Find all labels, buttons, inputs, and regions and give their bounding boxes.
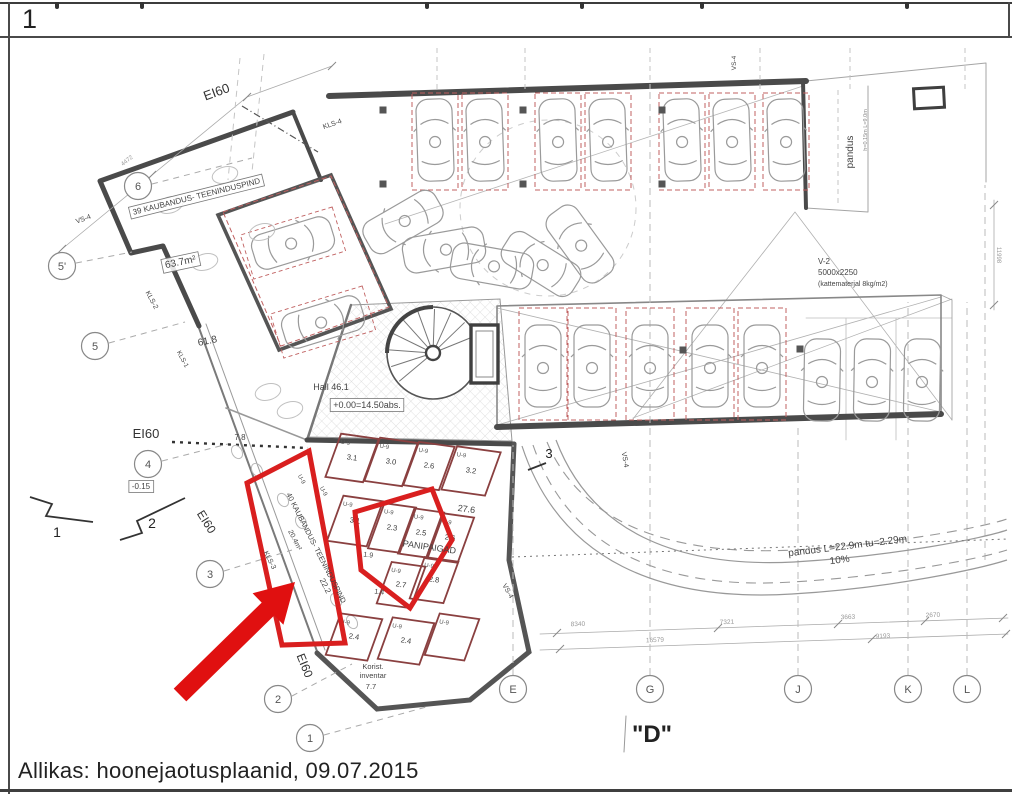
grid-marker-bottom-label: L <box>964 684 970 696</box>
plan-label-text: EI60 <box>201 80 231 103</box>
grid-marker-left-label: 4 <box>145 459 151 471</box>
grid-marker-bottom-label: E <box>509 684 516 696</box>
turning-circle-guide <box>460 120 636 296</box>
plan-label-text: EI60 <box>294 651 316 679</box>
plan-label: V-2 <box>818 257 831 266</box>
plan-label: inventar <box>360 671 387 680</box>
plan-label-text: U-9 <box>296 474 306 486</box>
wall-line <box>385 86 803 224</box>
plan-label-text: 8340 <box>571 621 586 629</box>
storage-room-number: 3.2 <box>465 465 477 475</box>
source-caption: Allikas: hoonejaotusplaanid, 09.07.2015 <box>18 758 419 784</box>
storage-door-label: U-9 <box>342 502 353 509</box>
plan-label: 16579 <box>646 637 665 645</box>
storage-door-label: U-9 <box>392 623 403 630</box>
ramp-curve <box>522 446 1007 595</box>
plan-label: EI60 <box>133 426 160 441</box>
dim-tick <box>243 93 251 101</box>
plan-label-text: 20.4m² <box>286 529 302 552</box>
storage-door-label: U-9 <box>439 619 450 626</box>
wall-line <box>100 112 293 326</box>
plan-label-text: 1.4 <box>374 588 385 596</box>
plan-label-text: 10% <box>829 554 850 567</box>
grid-marker-left-label: 5' <box>58 261 66 273</box>
column-dot <box>520 181 527 188</box>
wall-line <box>62 66 332 249</box>
plan-label-text: 7.7 <box>366 682 376 691</box>
plan-label: Hall 46.1 <box>313 382 349 392</box>
plan-label: 7.8 <box>234 433 246 442</box>
cropped-text-remnant <box>55 2 59 9</box>
plan-label-text: 2 <box>148 515 156 531</box>
car-icon <box>522 325 564 407</box>
plan-label: VS-4 <box>75 214 92 226</box>
car-icon <box>710 98 755 181</box>
plan-label-text: pandus <box>845 136 856 169</box>
plan-label: EI60 <box>294 651 316 679</box>
shaft-box <box>913 87 944 109</box>
plan-label: 20.4m² <box>286 529 302 552</box>
grid-leader-line <box>109 322 185 343</box>
car-icon <box>586 98 631 181</box>
grid-leader-line <box>76 252 132 263</box>
plan-label-text: EI60 <box>194 508 219 537</box>
plan-label: 7.7 <box>366 682 376 691</box>
storage-room-number: 2.4 <box>400 635 412 645</box>
turning-car-sweep-icon <box>357 183 449 260</box>
storage-door-label: U-9 <box>391 568 402 575</box>
column-dot <box>680 347 687 354</box>
column-dot <box>659 181 666 188</box>
column-dot <box>380 181 387 188</box>
wall-line <box>941 295 952 420</box>
column-dot <box>520 107 527 114</box>
plan-label-text: +0.00=14.50abs. <box>333 400 401 410</box>
storage-room-number: 2.7 <box>395 579 407 589</box>
plan-label: Korist. <box>362 662 383 671</box>
plan-label-text: 4472 <box>120 154 135 167</box>
plan-label: VS-4 <box>620 451 630 468</box>
scanned-plan-page: 1 3.1U-93.0U-92.6U-93.2U-93.1U-92.3U-92.… <box>0 0 1012 800</box>
cropped-text-remnant <box>425 2 429 9</box>
plan-label-text: 7321 <box>720 619 735 627</box>
plan-label: VS-4 <box>731 55 738 70</box>
grid-leader-line <box>224 550 292 571</box>
cropped-text-remnant <box>140 2 144 9</box>
plan-label-text: "D" <box>632 721 672 748</box>
plan-label-text: VS-4 <box>731 55 738 70</box>
plan-label-text: h=0.15m L=9.0m <box>863 109 869 151</box>
plan-label-text: -0.15 <box>132 482 151 491</box>
plan-label-text: KLS-2 <box>144 290 159 311</box>
dashed-construction-line <box>228 54 264 180</box>
storage-room-number: 3.0 <box>385 456 397 466</box>
furniture-shape <box>275 399 304 421</box>
ramp-station-line <box>512 539 1008 557</box>
plan-label-text: V-2 <box>818 257 831 266</box>
storage-room-number: 2.5 <box>415 527 427 537</box>
turning-car-sweep-icon <box>448 238 536 294</box>
garage-car-icon <box>248 211 339 275</box>
bottom-border-line <box>0 789 1012 792</box>
plan-label: (kattematerjal 8kg/m2) <box>818 281 888 288</box>
plan-label: EI60 <box>194 508 219 537</box>
storage-door-label: U-9 <box>456 452 467 459</box>
car-icon <box>764 98 809 181</box>
grid-marker-left-label: 6 <box>135 181 141 193</box>
plan-label: 3663 <box>841 614 856 622</box>
plan-label: 2 <box>148 515 156 531</box>
car-icon <box>536 98 581 181</box>
storage-room-number: 3.1 <box>346 452 358 462</box>
section-mark <box>30 497 93 522</box>
plan-label: 1.4 <box>374 588 385 596</box>
ramp-dashed-line <box>547 442 1007 551</box>
floor-plan-drawing: 3.1U-93.0U-92.6U-93.2U-93.1U-92.3U-92.5U… <box>10 38 1012 760</box>
plan-label: 9193 <box>876 633 891 641</box>
plan-label-text: VS-4 <box>620 451 630 468</box>
column-dot <box>797 346 804 353</box>
turning-car-sweep-icon <box>539 198 621 289</box>
wall-line <box>497 297 941 425</box>
plan-label-text: 1.9 <box>363 551 374 559</box>
plan-label-text: Korist. <box>362 662 383 671</box>
plan-label-text: 3663 <box>841 614 856 622</box>
plan-label-text: EI60 <box>133 426 160 441</box>
dashed-construction-line <box>513 92 985 675</box>
plan-label-text: 1 <box>53 524 61 540</box>
plan-label: KLS-4 <box>322 118 343 131</box>
plan-label: h=0.15m L=9.0m <box>863 109 869 151</box>
grid-marker-bottom-label: G <box>646 684 655 696</box>
plan-label-text: 7.8 <box>234 433 246 442</box>
storage-room-number: 2.3 <box>386 522 398 532</box>
car-icon <box>850 339 893 422</box>
wall-line <box>329 81 806 96</box>
parking-stall <box>240 207 345 279</box>
plan-label-text: 5000x2250 <box>818 268 858 277</box>
storage-room <box>425 614 480 661</box>
grid-marker-left-label: 2 <box>275 694 281 706</box>
sheet-number: 1 <box>22 4 37 35</box>
car-icon <box>800 339 843 422</box>
plan-label: "D" <box>632 721 672 748</box>
turning-car-sweep-icon <box>400 222 488 278</box>
plan-label: KLS-1 <box>175 350 190 370</box>
plan-label: 1.9 <box>363 551 374 559</box>
red-arrow <box>174 582 295 701</box>
plan-label-text: 16579 <box>646 637 665 645</box>
cropped-text-remnant <box>905 2 909 9</box>
dim-tick <box>328 62 336 70</box>
grid-marker-bottom-label: K <box>904 684 912 696</box>
right-border-line <box>1008 2 1010 38</box>
wall-line <box>624 716 626 752</box>
grid-marker-bottom-label: J <box>795 684 801 696</box>
car-icon <box>660 98 705 181</box>
plan-label-text: 11998 <box>995 247 1001 264</box>
storage-door-label: U-9 <box>379 444 390 451</box>
storage-door-label: U-9 <box>418 448 429 455</box>
plan-label: 61.8 <box>197 334 219 349</box>
plan-label: 8340 <box>571 621 586 629</box>
dashed-construction-line <box>242 106 318 152</box>
plan-label-text: 9193 <box>876 633 891 641</box>
plan-label: 2670 <box>926 612 941 620</box>
column-dot <box>380 107 387 114</box>
plan-label-text: 3 <box>545 446 552 461</box>
plan-label-text: KLS-4 <box>322 118 343 131</box>
car-icon <box>413 98 458 181</box>
wall-line <box>317 444 529 709</box>
plan-label: 4472 <box>120 154 135 167</box>
plan-label: 5000x2250 <box>818 268 858 277</box>
wall-line <box>806 318 952 440</box>
storage-room-number: 2.6 <box>423 460 435 470</box>
plan-label-text: inventar <box>360 671 387 680</box>
plan-label: +0.00=14.50abs. <box>330 399 404 412</box>
grid-leader-line <box>162 444 228 461</box>
wall-line <box>540 618 1008 650</box>
storage-door-label: U-9 <box>383 509 394 516</box>
plan-label-text: 27.6 <box>457 503 476 515</box>
turning-car-sweep-icon <box>495 224 587 303</box>
plan-label-text: KLS-1 <box>175 350 190 370</box>
cropped-text-remnant <box>580 2 584 9</box>
storage-room-number: 2.4 <box>348 631 360 641</box>
plan-label: 7321 <box>720 619 735 627</box>
storage-door-label: U-9 <box>340 440 351 447</box>
plan-label: -0.15 <box>129 481 154 493</box>
wall-line <box>806 63 986 212</box>
plan-label: 10% <box>829 554 850 567</box>
plan-label: U-9 <box>296 474 306 486</box>
spiral-staircase-icon <box>387 307 479 399</box>
car-icon <box>741 325 783 407</box>
wall-line <box>199 328 318 654</box>
furniture-shape <box>253 381 282 403</box>
elevator-shaft <box>471 325 498 383</box>
storage-door-label: U-9 <box>413 514 424 521</box>
plan-label: 11998 <box>995 247 1001 264</box>
plan-label: EI60 <box>201 80 231 103</box>
grid-marker-left-label: 5 <box>92 341 98 353</box>
plan-label-text: VS-4 <box>75 214 92 226</box>
plan-label: pandus <box>845 136 856 169</box>
column-dot <box>659 107 666 114</box>
cropped-text-remnant <box>700 2 704 9</box>
grid-marker-left-label: 1 <box>307 733 313 745</box>
top-border-line <box>0 2 1012 4</box>
car-icon <box>571 325 613 407</box>
plan-label-text: 61.8 <box>197 334 219 349</box>
plan-label: 27.6 <box>457 503 476 515</box>
plan-label: 3 <box>545 446 552 461</box>
plan-label-text: 2670 <box>926 612 941 620</box>
grid-marker-left-label: 3 <box>207 569 213 581</box>
plan-label-text: Hall 46.1 <box>313 382 349 392</box>
dim-tick <box>58 245 66 253</box>
plan-label: KLS-2 <box>144 290 159 311</box>
plan-label-text: (kattematerjal 8kg/m2) <box>818 281 888 288</box>
plan-label: 1 <box>53 524 61 540</box>
